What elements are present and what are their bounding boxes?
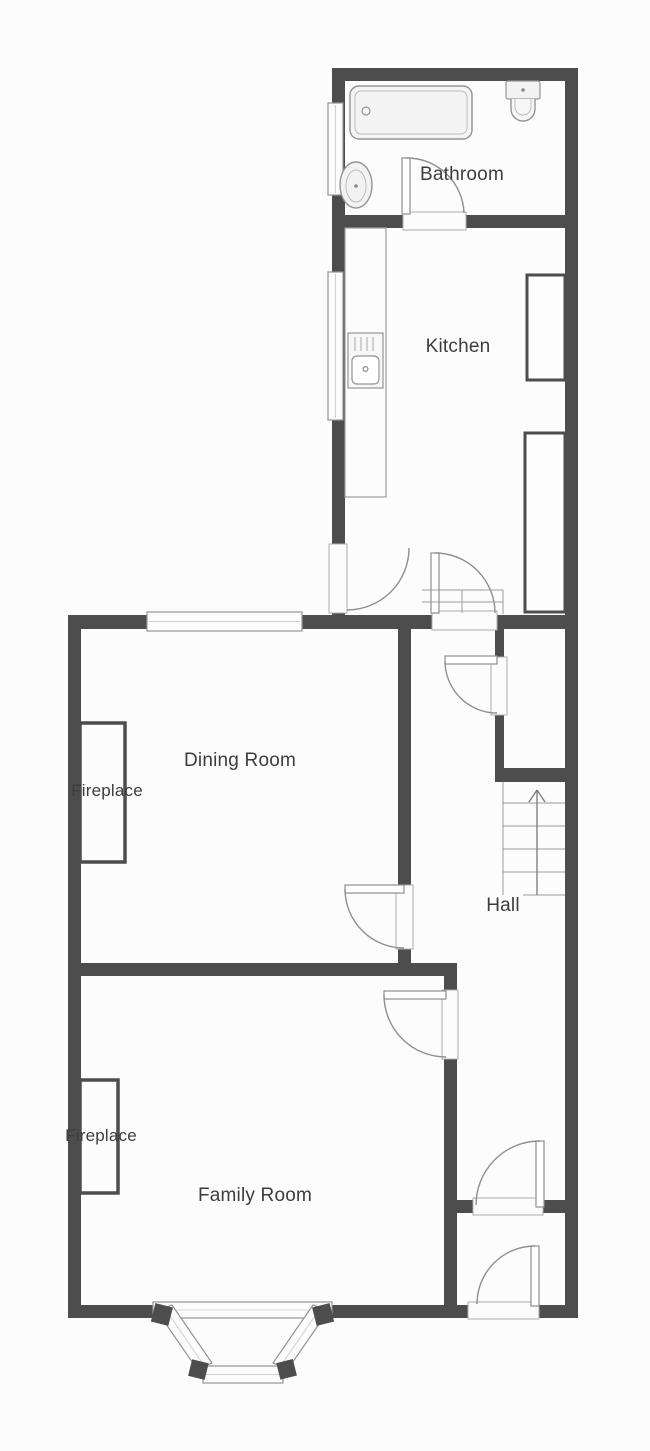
dining-fireplace-label: Fireplace bbox=[47, 781, 167, 801]
toilet bbox=[506, 81, 540, 121]
bay-window bbox=[151, 1302, 334, 1383]
bathroom-label: Bathroom bbox=[402, 164, 522, 186]
hall-label: Hall bbox=[443, 895, 563, 917]
bathtub bbox=[350, 86, 472, 139]
dining-room-label: Dining Room bbox=[160, 750, 320, 772]
dining-room-window bbox=[147, 612, 302, 631]
kitchen-window bbox=[328, 272, 343, 420]
front-door bbox=[468, 1246, 539, 1319]
floor-plan: Bathroom Kitchen Dining Room Hall Family… bbox=[0, 0, 650, 1451]
stairs bbox=[503, 782, 565, 895]
hall-closet-door bbox=[445, 656, 507, 715]
kitchen-cupboard-upper bbox=[527, 275, 565, 380]
family-room-label: Family Room bbox=[175, 1185, 335, 1207]
family-fireplace-label: Fireplace bbox=[41, 1126, 161, 1146]
kitchen-sink-unit bbox=[348, 333, 383, 388]
bathroom-sink bbox=[340, 162, 372, 208]
stairs-up-arrow bbox=[529, 790, 545, 895]
kitchen-cupboard-lower bbox=[525, 433, 565, 612]
kitchen-label: Kitchen bbox=[398, 336, 518, 358]
hall-porch-door bbox=[473, 1141, 544, 1215]
fixtures-layer bbox=[0, 0, 650, 1451]
family-room-door bbox=[384, 990, 458, 1059]
kitchen-side-door bbox=[329, 544, 409, 613]
kitchen-hall-door bbox=[431, 553, 497, 630]
dining-room-door bbox=[345, 885, 413, 949]
